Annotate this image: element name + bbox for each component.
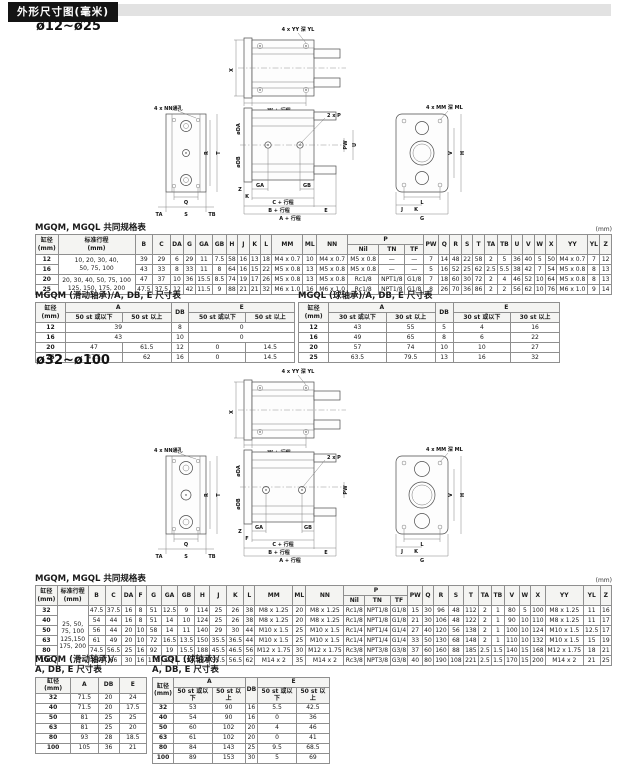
table-row: 80932818.5 — [36, 733, 147, 743]
column-header: TA — [484, 235, 497, 255]
table-cell: 52 — [523, 275, 534, 285]
table-cell: G1/8 — [405, 275, 424, 285]
table-cell: 39 — [135, 255, 153, 265]
table-cell: 25 — [98, 723, 119, 733]
table-cell: Rc1/8 — [344, 606, 365, 616]
table-cell: 58 — [226, 255, 237, 265]
table-cell: 10 — [171, 333, 189, 343]
dim-s: S — [184, 554, 188, 560]
table-cell: 36 — [184, 275, 195, 285]
table-cell: 20 — [98, 693, 119, 703]
table-cell: 188 — [195, 646, 210, 656]
table-cell: 46 — [511, 275, 522, 285]
column-header: Q — [439, 235, 450, 255]
table-cell: 16.5 — [161, 636, 178, 646]
table-cell: 74 — [226, 275, 237, 285]
column-header: 缸径 (mm) — [36, 677, 71, 693]
table-cell: 25 — [293, 636, 306, 646]
column-header: U — [511, 235, 522, 255]
mgql-adbe-table-small: MGQL (球轴承)/A, DB, E 尺寸表 缸径 (mm)ADBE30 st… — [298, 289, 560, 363]
table-cell: 90 — [212, 713, 245, 723]
dim-x: X — [229, 68, 235, 72]
column-header: GA — [161, 586, 178, 606]
dim-tb: TB — [208, 554, 215, 560]
table-row: 1210, 20, 30, 40, 50, 75, 1003929629117.… — [36, 255, 612, 265]
end-view: 4 x MM 深 ML V H L J K G — [396, 446, 466, 564]
column-header: A — [65, 303, 171, 313]
table-cell: M5 x 0.8 — [317, 265, 348, 275]
column-header: 30 st 以上 — [511, 313, 560, 323]
table-cell: 56 — [448, 626, 463, 636]
table-cell: 50 — [422, 636, 433, 646]
dim-da: øDA — [236, 465, 242, 477]
column-header: T — [463, 586, 478, 606]
dim-h: H — [460, 151, 466, 155]
table-row: 1643100 — [36, 333, 295, 343]
table-row: 8084143259.568.5 — [153, 743, 330, 753]
table-cell: M12 x 1.75 — [255, 646, 293, 656]
table-cell: 150 — [195, 636, 210, 646]
table-cell: 44 — [105, 616, 122, 626]
column-header: NN — [317, 235, 348, 255]
table-cell: NPT3/8 — [365, 646, 390, 656]
table-cell: 27 — [408, 626, 423, 636]
table-cell: 17 — [600, 616, 611, 626]
column-header: 50 st 以上 — [123, 313, 171, 323]
column-header: F — [135, 586, 146, 606]
column-header: TB — [491, 586, 504, 606]
table-cell: 26 — [260, 275, 271, 285]
table-cell: 12 — [299, 323, 329, 333]
column-header: K — [249, 235, 260, 255]
table-cell: 72 — [146, 636, 161, 646]
table-cell: 200 — [530, 656, 545, 666]
table-cell: 13 — [600, 265, 612, 275]
table-cell: 100 — [153, 753, 174, 763]
table-cell: 29 — [210, 626, 227, 636]
table-cell: 0 — [189, 333, 295, 343]
table-cell: 16 — [36, 265, 59, 275]
dim-db: øDB — [236, 156, 242, 168]
table-cell: 38 — [244, 606, 255, 616]
table-row: 405444168511410124252638M8 x 1.2520M8 x … — [36, 616, 612, 626]
table-cell: 5 — [498, 255, 511, 265]
dim-v: V — [448, 151, 454, 155]
table-cell: 58 — [146, 626, 161, 636]
table-cell: 44 — [105, 626, 122, 636]
table-cell: 20 — [122, 636, 135, 646]
column-header: PW — [424, 235, 439, 255]
table-cell: 30 — [245, 753, 258, 763]
table-cell: M5 x 0.8 — [348, 255, 379, 265]
table-row: 1001053621 — [36, 743, 147, 753]
table-cell: 38 — [511, 265, 522, 275]
column-header: 30 st 或以下 — [453, 313, 510, 323]
table-cell: G1/4 — [390, 626, 408, 636]
table-cell: 30 — [422, 616, 433, 626]
table-cell: 15 — [519, 656, 530, 666]
table-title-line2: A, DB, E 尺寸表 — [35, 666, 147, 676]
table-cell: 6 — [170, 255, 184, 265]
table-cell: 132 — [530, 636, 545, 646]
column-header: P — [348, 235, 424, 245]
dim-ta: TA — [156, 212, 163, 218]
table-cell: 2 — [484, 255, 497, 265]
table-cell: 22 — [461, 255, 472, 265]
table-cell: 54 — [88, 616, 105, 626]
table-cell: 81 — [71, 723, 98, 733]
table-cell: 13 — [303, 265, 317, 275]
table-cell: 68.5 — [296, 743, 329, 753]
column-header: GA — [195, 235, 213, 255]
common-spec-table-small: MGQM, MGQL 共同规格表 (mm) 缸径 (mm)标准行程 (mm)BC… — [35, 221, 612, 295]
unit-label: (mm) — [596, 226, 612, 233]
column-header: 30 st 以上 — [386, 313, 435, 323]
dim-ta: TA — [156, 554, 163, 560]
table-cell: 18 — [260, 255, 271, 265]
table-cell: 21 — [600, 646, 611, 656]
table-cell: 89 — [174, 753, 213, 763]
dim-t: T — [216, 151, 222, 155]
table-row: 5056442010581411140293044M10 x 1.525M10 … — [36, 626, 612, 636]
column-header: J — [238, 235, 249, 255]
table-cell: 11 — [583, 616, 600, 626]
table-cell: 54 — [174, 713, 213, 723]
column-header: YL — [583, 586, 600, 606]
table-cell: 102 — [212, 723, 245, 733]
column-header: E — [258, 677, 330, 687]
table-cell: 12 — [171, 343, 189, 353]
table-cell: 61 — [88, 636, 105, 646]
table-cell: M10 x 1.5 — [545, 626, 583, 636]
table-cell: 35.5 — [210, 636, 227, 646]
table-title: MGQL (球轴承)/A, DB, E 尺寸表 — [298, 289, 432, 301]
column-header: H — [226, 235, 237, 255]
top-view: 4 x YY 深 YL X Z W + 行程 — [229, 368, 346, 456]
table-cell: 6 — [453, 333, 510, 343]
dim-r: R — [204, 151, 210, 155]
table-cell: 49 — [329, 333, 386, 343]
table-cell: 19 — [600, 636, 611, 646]
table-cell: 0 — [258, 713, 297, 723]
table-cell: 10 — [534, 275, 545, 285]
table-cell: 63 — [36, 723, 71, 733]
label-ports: 2 x P — [327, 455, 341, 461]
table-cell: 8 — [171, 323, 189, 333]
side-view: 4 x NN通孔 R T Q TA S TB — [154, 447, 222, 560]
table-cell: M10 x 1.5 — [545, 636, 583, 646]
table-cell: — — [405, 265, 424, 275]
column-header: E — [453, 303, 559, 313]
table-cell: 13 — [435, 353, 453, 363]
table-cell: NPT1/4 — [365, 636, 390, 646]
column-header: 50 st 以上 — [212, 687, 245, 703]
table-cell: 63.5 — [329, 353, 386, 363]
table-cell: 15 — [249, 265, 260, 275]
dim-s: S — [184, 212, 188, 218]
table-cell: 1 — [491, 636, 504, 646]
table-cell: 62 — [123, 353, 171, 363]
table-cell: 20 — [98, 703, 119, 713]
column-header: B — [135, 235, 153, 255]
column-header: P — [344, 586, 408, 596]
table-cell: NPT1/8 — [379, 275, 405, 285]
table-cell: 16 — [122, 606, 135, 616]
table-cell: 1 — [491, 626, 504, 636]
label-nn-holes: 4 x NN通孔 — [154, 105, 183, 112]
table-cell: 138 — [463, 626, 478, 636]
dimension-table: 缸径 (mm)ADBE30 st 或以下30 st 以上30 st 或以下30 … — [298, 302, 560, 363]
column-header: S — [448, 586, 463, 606]
table-cell: M4 x 0.7 — [557, 255, 588, 265]
column-header: X — [530, 586, 545, 606]
dimension-table: 缸径 (mm)ADBE50 st 或以下50 st 以上50 st 或以下50 … — [152, 677, 330, 764]
table-cell: 90 — [212, 703, 245, 713]
table-cell: 10 — [435, 343, 453, 353]
table-cell: 14 — [600, 285, 612, 295]
table-cell: 122 — [463, 616, 478, 626]
table-cell: 30 — [422, 606, 433, 616]
table-cell: Rc1/8 — [344, 616, 365, 626]
column-header: G — [184, 235, 195, 255]
table-title-line2: A, DB, E 尺寸表 — [152, 666, 330, 676]
table-cell: M8 x 1.25 — [306, 606, 344, 616]
table-cell: 55 — [386, 323, 435, 333]
table-cell: 63 — [36, 636, 58, 646]
table-cell: 48 — [448, 606, 463, 616]
dim-u: U — [352, 143, 358, 147]
table-cell: 15 — [519, 646, 530, 656]
dim-ga: GA — [256, 183, 264, 189]
table-cell: 53 — [174, 703, 213, 713]
table-cell: 74.5 — [88, 646, 105, 656]
table-cell: M5 x 0.8 — [557, 275, 588, 285]
table-cell: G1/8 — [390, 606, 408, 616]
column-header: V — [504, 586, 519, 606]
table-cell: 12 — [36, 323, 66, 333]
table-cell: M14 x 2 — [545, 656, 583, 666]
table-cell: 36.5 — [227, 636, 244, 646]
table-cell: 2 — [484, 275, 497, 285]
table-cell: 32 — [511, 353, 560, 363]
column-header: C — [105, 586, 122, 606]
dim-c-stroke: C + 行程 — [272, 199, 293, 206]
table-cell: 16 — [36, 333, 66, 343]
table-cell: 25 — [210, 606, 227, 616]
table-cell: 47.5 — [88, 606, 105, 616]
table-cell: 16 — [171, 353, 189, 363]
table-cell: 0 — [189, 323, 295, 333]
table-cell: 124 — [530, 626, 545, 636]
dim-b-stroke: B + 行程 — [268, 207, 289, 214]
table-cell: 56.5 — [105, 646, 122, 656]
table-cell: 16 — [135, 646, 146, 656]
table-cell: 10 — [178, 616, 195, 626]
table-row: 3225, 50, 75, 100 125,150 175, 20047.537… — [36, 606, 612, 616]
table-cell: 124 — [195, 616, 210, 626]
table-cell: 8 — [588, 275, 600, 285]
table-container: 缸径 (mm)标准行程 (mm)BCDAFGGAGBHJKLMMMLNNPPWQ… — [35, 585, 612, 666]
table-cell: Rc3/8 — [344, 646, 365, 656]
table-cell: 13 — [600, 275, 612, 285]
table-cell: 14.5 — [246, 353, 295, 363]
table-cell: 40 — [153, 713, 174, 723]
table-cell: M6 x 1.0 — [557, 285, 588, 295]
table-cell: 60 — [450, 275, 461, 285]
column-header: R — [450, 235, 461, 255]
dim-z2: Z — [238, 529, 242, 535]
table-cell: 10 — [519, 626, 530, 636]
column-header: A — [174, 677, 246, 687]
column-header: 30 st 或以下 — [329, 313, 386, 323]
table-cell: 112 — [463, 606, 478, 616]
table-cell: 25 — [119, 713, 146, 723]
dim-g: G — [420, 558, 424, 564]
table-cell: 12 — [600, 255, 612, 265]
column-header: YY — [545, 586, 583, 606]
table-cell: 36 — [511, 255, 522, 265]
dim-e: E — [324, 208, 328, 214]
column-header: W — [519, 586, 530, 606]
table-row: 2020, 30, 40, 50, 75, 100 125, 150, 175,… — [36, 275, 612, 285]
front-view: 2 x P øDA øDB PW U GA GB Z K C + 行程 B + … — [236, 108, 358, 222]
table-cell: 47 — [135, 275, 153, 285]
table-cell: 15 — [583, 636, 600, 646]
table-cell: 40 — [408, 656, 423, 666]
dim-j: J — [400, 207, 403, 213]
table-cell: 40 — [523, 255, 534, 265]
column-header: E — [119, 677, 146, 693]
table-cell: M4 x 0.7 — [317, 255, 348, 265]
table-cell: 36 — [98, 743, 119, 753]
table-cell: 120 — [433, 626, 448, 636]
dim-k2: K — [414, 207, 419, 213]
table-cell: 69 — [296, 753, 329, 763]
table-cell: 15.5 — [195, 275, 213, 285]
dimension-table: 缸径 (mm)ADBE3271.520244071.52017.55081252… — [35, 677, 147, 754]
table-cell: 90 — [504, 616, 519, 626]
column-header: DB — [98, 677, 119, 693]
column-header: TA — [478, 586, 491, 606]
table-cell: 80 — [504, 606, 519, 616]
column-header: 50 st 以上 — [246, 313, 295, 323]
column-header: 缸径 (mm) — [299, 303, 329, 323]
column-header: DB — [435, 303, 453, 323]
table-container: 缸径 (mm)标准行程 (mm)BCDAGGAGBHJKLMMMLNNPPWQR… — [35, 234, 612, 295]
table-cell: 168 — [530, 646, 545, 656]
column-header: H — [195, 586, 210, 606]
dim-x: X — [229, 410, 235, 414]
table-cell: Rc1/8 — [348, 275, 379, 285]
table-cell: 61 — [174, 733, 213, 743]
table-cell: 24 — [119, 693, 146, 703]
table-cell: G3/8 — [390, 656, 408, 666]
table-cell: 140 — [195, 626, 210, 636]
column-header: A — [329, 303, 435, 313]
table-cell: 47 — [65, 343, 122, 353]
table-cell: 43 — [65, 333, 171, 343]
table-cell: 25 — [461, 265, 472, 275]
table-cell: M8 x 1.25 — [255, 616, 293, 626]
table-cell: M5 x 0.8 — [348, 265, 379, 275]
dim-ga: GA — [255, 525, 263, 531]
table-cell: 25 — [299, 353, 329, 363]
table-row: 2563.579.5131632 — [299, 353, 560, 363]
column-header: 标准行程 (mm) — [58, 235, 135, 255]
table-cell: 2 — [478, 616, 491, 626]
table-cell: — — [405, 255, 424, 265]
table-cell: 93 — [71, 733, 98, 743]
table-cell: 65 — [386, 333, 435, 343]
table-cell: 1.5 — [491, 656, 504, 666]
table-cell: 10 — [135, 626, 146, 636]
dim-h: H — [460, 493, 466, 497]
table-cell: 49 — [105, 636, 122, 646]
column-header: V — [523, 235, 534, 255]
table-cell: 13 — [303, 275, 317, 285]
table-cell: 17 — [600, 626, 611, 636]
column-header: Z — [600, 235, 612, 255]
table-cell: 30 — [227, 626, 244, 636]
column-header: A — [71, 677, 98, 693]
table-cell: M12 x 1.75 — [545, 646, 583, 656]
dim-v: V — [448, 493, 454, 497]
table-cell: 5 — [519, 606, 530, 616]
dim-b-stroke: B + 行程 — [268, 549, 289, 556]
column-header: S — [461, 235, 472, 255]
dimension-drawing-small-bores: 4 x YY 深 YL X Z W + 行程 4 x NN通孔 R T Q TA… — [148, 26, 478, 222]
table-cell: 1 — [491, 616, 504, 626]
table-cell: 16 — [245, 703, 258, 713]
table-cell: 26 — [227, 616, 244, 626]
dim-pw: PW — [343, 485, 349, 495]
table-cell: 18 — [583, 646, 600, 656]
table-cell: 56 — [244, 646, 255, 656]
table-row: 3271.52024 — [36, 693, 147, 703]
table-cell: 29 — [184, 255, 195, 265]
table-cell: 10 — [135, 636, 146, 646]
column-header: ML — [293, 586, 306, 606]
table-cell: 58 — [473, 255, 484, 265]
column-header: L — [244, 586, 255, 606]
table-cell: 170 — [504, 656, 519, 666]
column-header: DB — [171, 303, 189, 323]
column-header: MM — [255, 586, 293, 606]
table-cell: 15.5 — [178, 646, 195, 656]
table-cell: 19 — [161, 646, 178, 656]
table-cell: 64 — [545, 275, 556, 285]
table-cell: 21 — [583, 656, 600, 666]
table-row: 636110220041 — [153, 733, 330, 743]
column-header: PW — [408, 586, 423, 606]
table-cell: 52 — [450, 265, 461, 275]
table-cell: 16 — [511, 323, 560, 333]
table-cell: 40 — [36, 616, 58, 626]
column-header: E — [189, 303, 295, 313]
table-cell: 51 — [146, 606, 161, 616]
table-cell: 40 — [422, 626, 433, 636]
table-cell: 8 — [435, 333, 453, 343]
column-header: NN — [306, 586, 344, 606]
column-header: 50 st 以上 — [296, 687, 329, 703]
table-title-row: MGQM, MGQL 共同规格表 (mm) — [35, 572, 612, 584]
column-header: C — [153, 235, 171, 255]
end-view: 4 x MM 深 ML V H L J K G — [396, 104, 466, 222]
table-cell: 36 — [296, 713, 329, 723]
table-cell: 7 — [424, 275, 439, 285]
dim-t: T — [216, 493, 222, 497]
table-cell: 0 — [189, 353, 246, 363]
